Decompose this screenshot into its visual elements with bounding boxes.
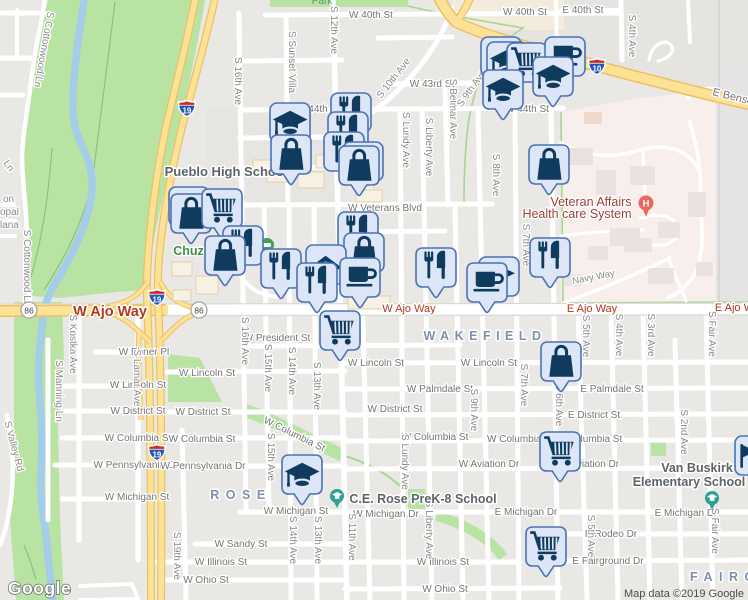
svg-text:S 14th Ave: S 14th Ave [287,516,298,565]
svg-text:W Ohio St: W Ohio St [422,584,468,595]
svg-text:S Belmar Ave: S Belmar Ave [447,79,458,140]
svg-text:19: 19 [152,295,161,304]
svg-text:W Illinois St: W Illinois St [195,557,247,568]
svg-text:S 16th Ave: S 16th Ave [232,57,243,106]
svg-text:opal: opal [0,207,19,218]
svg-text:W Ajo Way: W Ajo Way [73,304,147,320]
svg-text:19: 19 [152,450,161,459]
svg-text:W Columbia St: W Columbia St [105,433,172,444]
svg-text:S 8th Ave: S 8th Ave [490,154,501,197]
svg-text:W Michigan Dr: W Michigan Dr [353,509,419,520]
svg-text:W Aviation Dr: W Aviation Dr [459,459,520,470]
svg-text:Pueblo High School: Pueblo High School [165,164,288,179]
svg-text:on: on [3,194,14,205]
svg-text:E 40th St: E 40th St [562,5,603,16]
svg-text:W District St: W District St [368,404,423,415]
svg-text:Google: Google [8,578,71,598]
svg-text:W District St: W District St [111,406,166,417]
svg-text:W Columbia St: W Columbia St [402,432,469,443]
svg-text:W President St: W President St [244,333,311,344]
svg-text:S 7th Ave: S 7th Ave [518,364,529,407]
svg-text:S 13th Ave: S 13th Ave [312,516,323,565]
svg-text:FAIRGR: FAIRGR [690,570,748,584]
svg-text:Van Buskirk: Van Buskirk [661,461,733,475]
svg-text:S Liberty Ave: S Liberty Ave [423,501,434,560]
svg-text:S Fair Ave: S Fair Ave [706,311,717,357]
svg-text:S Kostka Ave: S Kostka Ave [67,314,78,374]
svg-text:lana: lana [0,220,19,231]
svg-text:S Liberty Ave: S Liberty Ave [423,118,434,177]
svg-text:E Ajo Way: E Ajo Way [715,302,748,314]
svg-text:S 9th Ave: S 9th Ave [468,389,479,432]
svg-text:S 2nd Ave: S 2nd Ave [678,409,689,455]
svg-text:86: 86 [24,306,34,316]
svg-text:E Michigan Dr: E Michigan Dr [495,507,558,518]
svg-text:W 40th St: W 40th St [503,7,547,18]
svg-text:W Lincoln St: W Lincoln St [179,368,235,379]
svg-text:S 3rd Ave: S 3rd Ave [645,313,656,357]
svg-text:W Pennsylvania Dr: W Pennsylvania Dr [160,461,246,472]
svg-text:E Ajo Way: E Ajo Way [567,303,618,315]
svg-text:S 15th Ave: S 15th Ave [265,433,276,482]
svg-text:S Fair Ave: S Fair Ave [709,508,720,554]
svg-text:H: H [643,199,650,210]
svg-text:W Ajo Way: W Ajo Way [382,303,436,315]
svg-text:S Cottonwood Ln: S Cottonwood Ln [21,230,32,307]
svg-text:10: 10 [592,64,601,73]
svg-text:E District St: E District St [568,410,620,421]
svg-text:W Ebner Pl: W Ebner Pl [119,347,170,358]
svg-text:W Palmdale St: W Palmdale St [407,384,473,395]
svg-text:W Ohio St: W Ohio St [183,575,229,586]
svg-text:W Michigan St: W Michigan St [105,492,170,503]
svg-text:S 5th Ave: S 5th Ave [585,515,596,558]
svg-text:W District St: W District St [176,407,231,418]
svg-text:E Michigan Dr: E Michigan Dr [655,508,718,519]
svg-text:19: 19 [182,106,191,115]
svg-text:Health care System: Health care System [522,207,631,221]
svg-text:S 14th Ave: S 14th Ave [286,347,297,396]
svg-text:86: 86 [194,306,204,316]
svg-text:S 16th Ave: S 16th Ave [239,317,250,366]
svg-text:S 19th Ave: S 19th Ave [171,532,182,581]
svg-text:S 13th Ave: S 13th Ave [311,362,322,411]
svg-text:S 4th Ave: S 4th Ave [613,314,624,357]
svg-text:E Palmdale St: E Palmdale St [580,384,644,395]
svg-text:C.E. Rose PreK-8 School: C.E. Rose PreK-8 School [349,492,496,506]
svg-text:Map data ©2019 Google: Map data ©2019 Google [624,588,744,600]
svg-text:S 4th Ave: S 4th Ave [626,15,637,58]
svg-text:S Lundy Ave: S Lundy Ave [399,434,410,490]
svg-text:ROSE: ROSE [210,488,271,502]
svg-text:E Fairground Dr: E Fairground Dr [572,556,644,567]
svg-text:Elementary School: Elementary School [633,475,746,489]
svg-text:S 11th Ave: S 11th Ave [346,513,357,561]
svg-text:S 15th Ave: S 15th Ave [262,344,273,393]
svg-text:S 12th Ave: S 12th Ave [328,6,339,55]
svg-text:S Lundy Ave: S Lundy Ave [400,112,411,168]
svg-text:W Columbia St: W Columbia St [169,434,236,445]
svg-text:S Manning Ln: S Manning Ln [53,360,64,422]
svg-text:S Lamar Ave: S Lamar Ave [131,349,142,407]
svg-text:viation Dr: viation Dr [577,459,620,470]
svg-text:W 40th St: W 40th St [349,10,393,21]
svg-text:S Sunset Villa: S Sunset Villa [286,31,297,94]
svg-text:W Lincoln St: W Lincoln St [461,358,517,369]
svg-text:W Sandy St: W Sandy St [215,539,268,550]
svg-text:Park: Park [312,0,334,7]
svg-text:WAKEFIELD: WAKEFIELD [423,329,546,343]
svg-text:W Lincoln St: W Lincoln St [348,358,404,369]
